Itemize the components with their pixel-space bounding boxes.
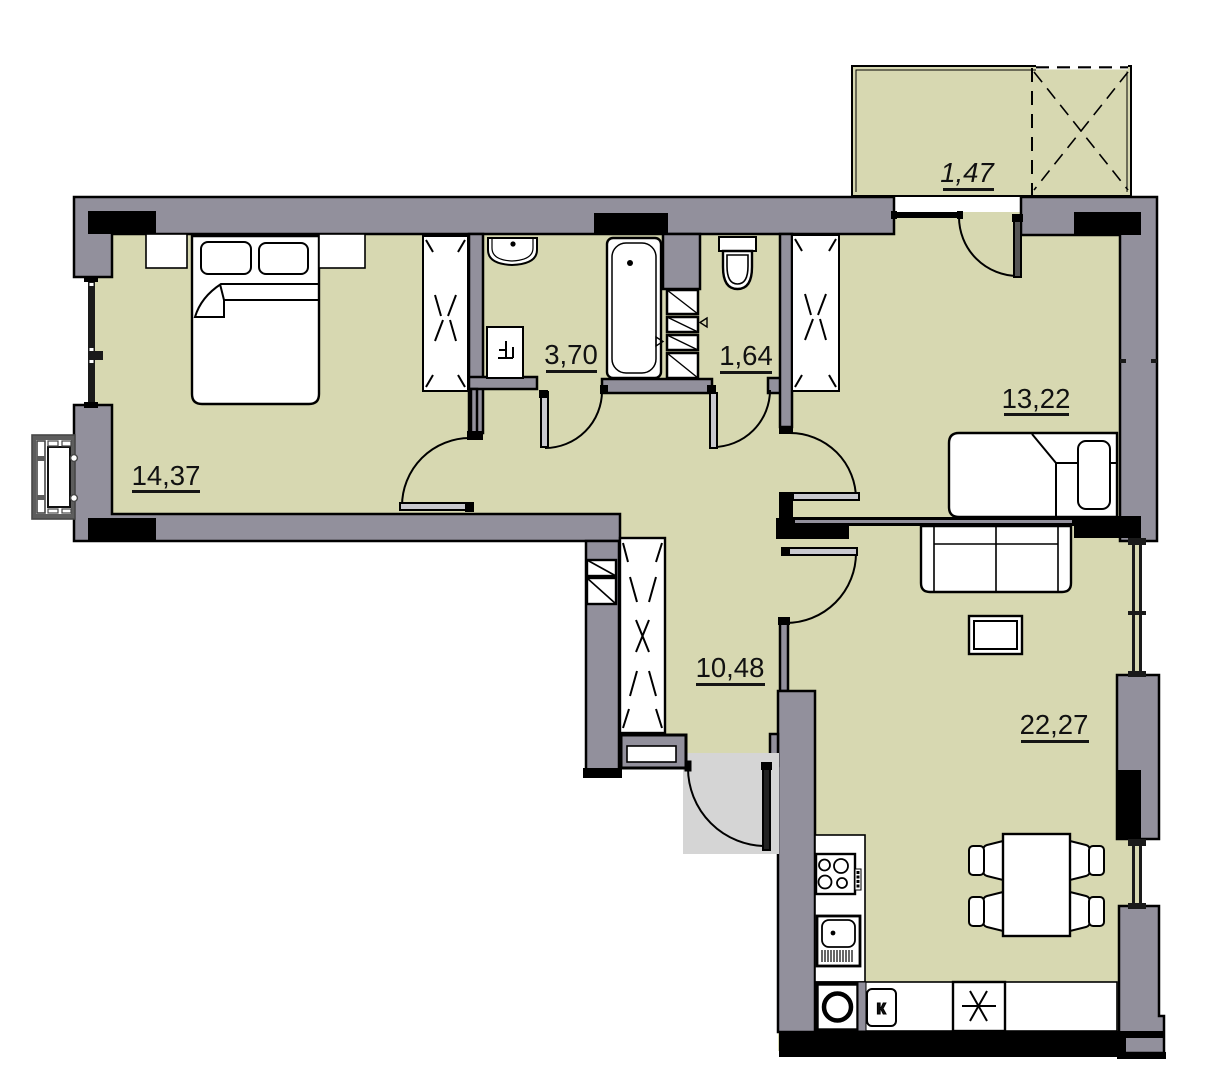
svg-text:10,48: 10,48 [696,652,765,683]
svg-text:14,37: 14,37 [132,460,201,491]
svg-text:22,27: 22,27 [1020,709,1089,740]
svg-text:к: к [876,997,887,1019]
svg-text:1,64: 1,64 [719,340,773,371]
svg-text:13,22: 13,22 [1002,383,1071,414]
svg-text:3,70: 3,70 [544,339,598,370]
svg-text:1,47: 1,47 [940,157,995,188]
